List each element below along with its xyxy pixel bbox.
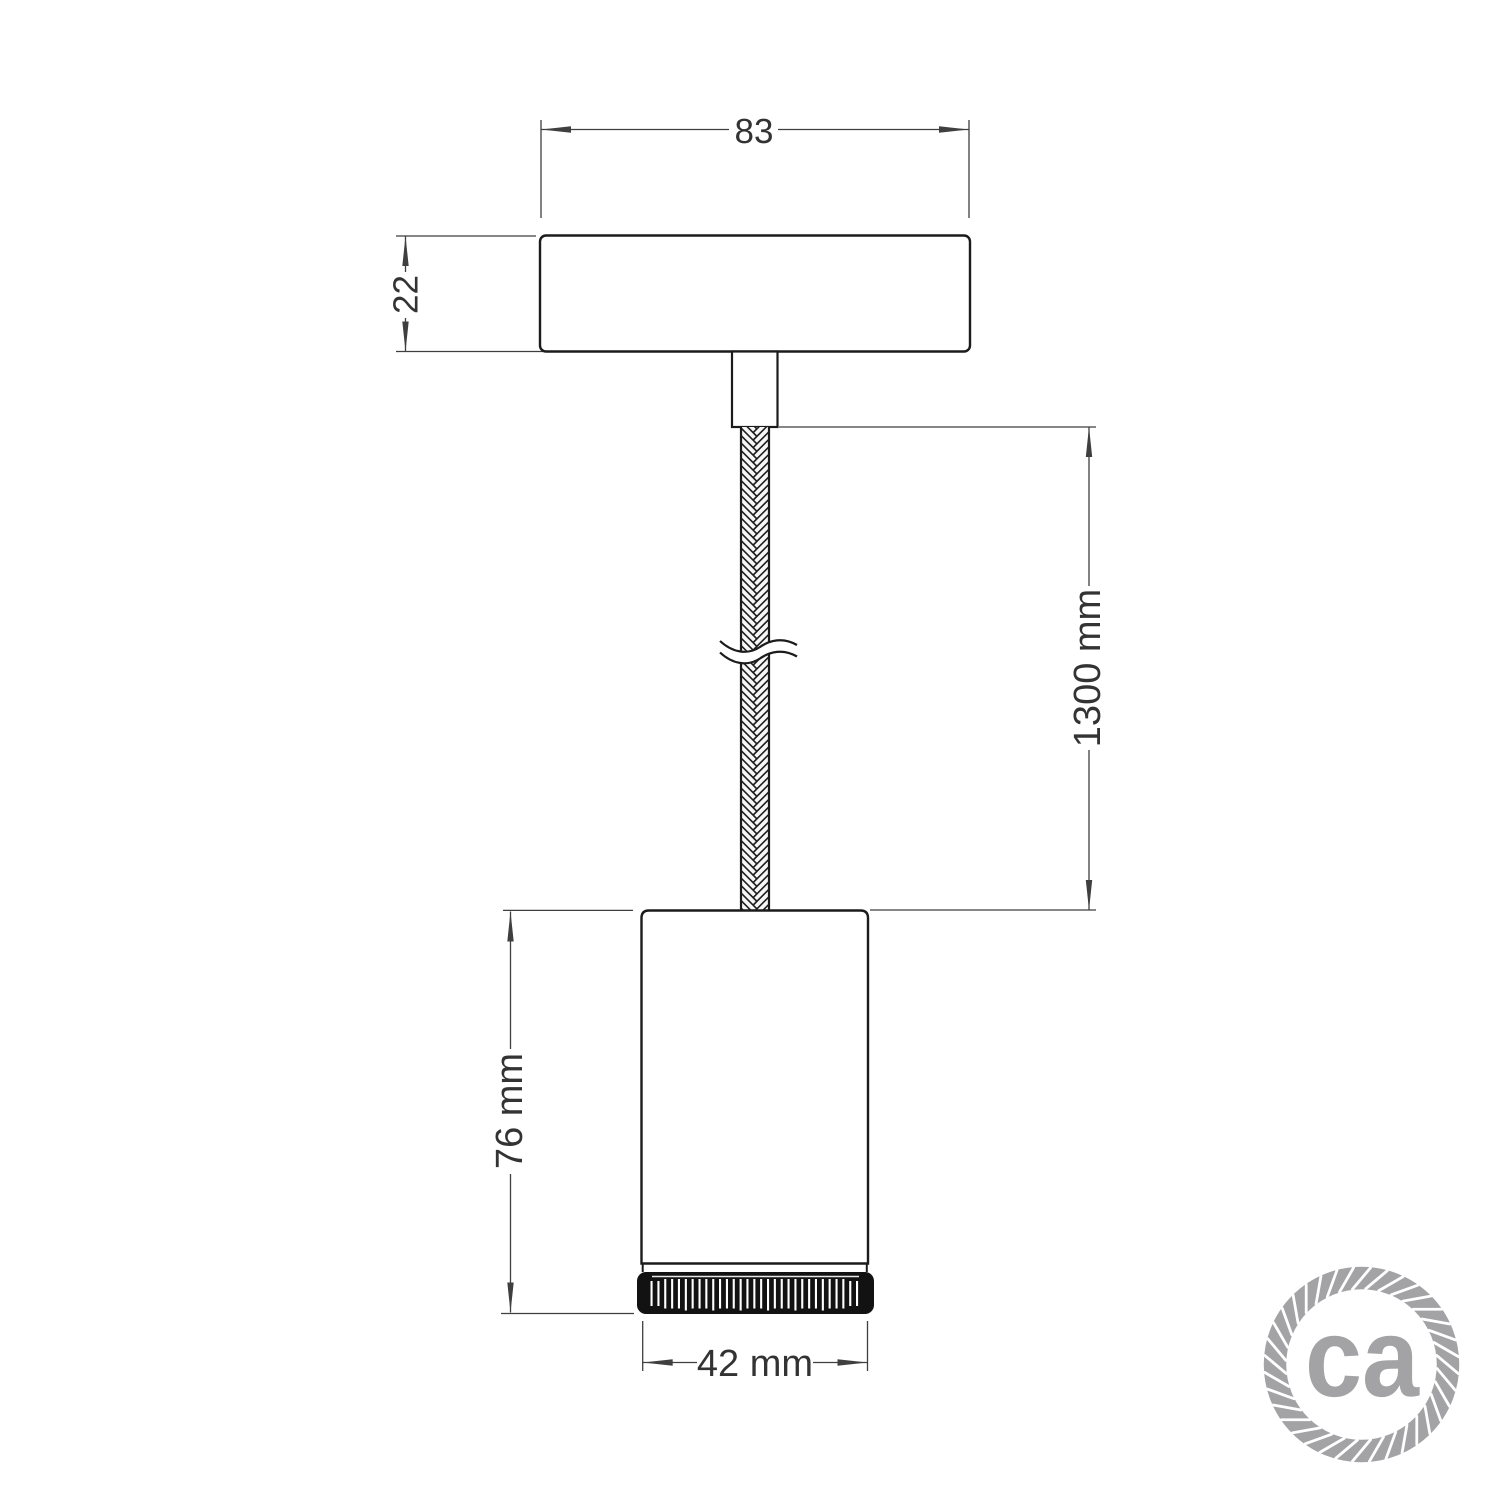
svg-text:1300 mm: 1300 mm <box>1067 589 1109 747</box>
svg-text:22: 22 <box>387 275 426 314</box>
svg-text:76 mm: 76 mm <box>489 1053 531 1169</box>
svg-text:42 mm: 42 mm <box>697 1343 813 1385</box>
svg-text:83: 83 <box>735 112 774 151</box>
svg-text:ca: ca <box>1305 1295 1420 1420</box>
